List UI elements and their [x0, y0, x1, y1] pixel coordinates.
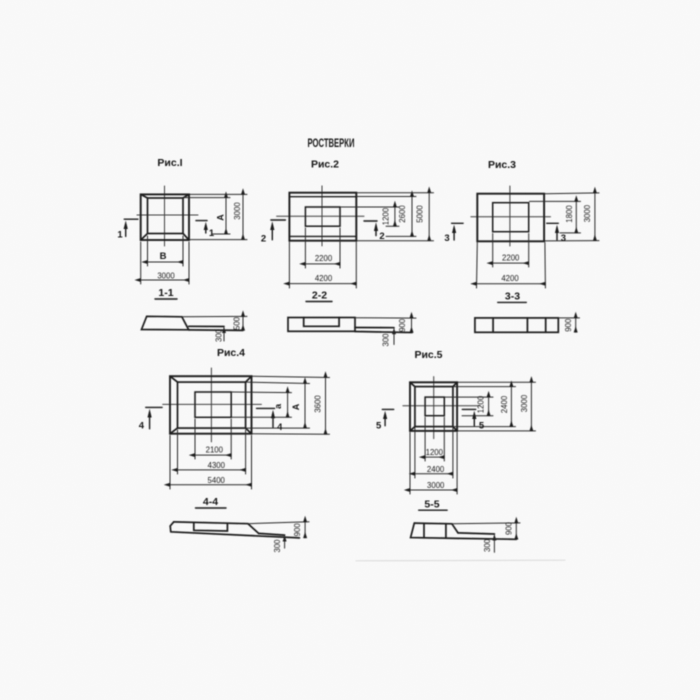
- svg-text:1-1: 1-1: [158, 287, 173, 299]
- svg-text:900: 900: [505, 521, 514, 535]
- svg-text:300: 300: [382, 333, 391, 347]
- svg-text:500: 500: [232, 316, 241, 330]
- svg-text:300: 300: [214, 328, 223, 342]
- svg-text:2: 2: [379, 231, 384, 242]
- svg-text:3-3: 3-3: [505, 291, 520, 303]
- svg-text:2-2: 2-2: [312, 290, 327, 302]
- svg-text:Рис.I: Рис.I: [157, 157, 182, 169]
- svg-text:1: 1: [117, 230, 123, 241]
- svg-text:3: 3: [561, 233, 566, 244]
- svg-text:3000: 3000: [427, 481, 445, 490]
- svg-text:5400: 5400: [208, 476, 226, 485]
- svg-text:1: 1: [209, 228, 215, 239]
- svg-text:1200: 1200: [426, 448, 444, 457]
- svg-text:3000: 3000: [233, 202, 242, 220]
- svg-text:РОСТВЕРКИ: РОСТВЕРКИ: [308, 136, 355, 150]
- svg-text:300: 300: [483, 538, 492, 552]
- svg-text:1800: 1800: [565, 205, 574, 223]
- svg-text:2200: 2200: [315, 254, 333, 263]
- svg-text:2400: 2400: [427, 465, 445, 474]
- svg-text:5: 5: [376, 421, 382, 432]
- svg-text:5: 5: [479, 421, 485, 432]
- svg-text:900: 900: [564, 318, 573, 332]
- svg-text:1200: 1200: [477, 395, 486, 413]
- svg-text:Рис.4: Рис.4: [217, 347, 245, 359]
- svg-text:900: 900: [398, 318, 407, 332]
- svg-text:2600: 2600: [398, 205, 407, 223]
- svg-text:4-4: 4-4: [203, 496, 218, 508]
- svg-text:5000: 5000: [416, 205, 425, 223]
- svg-text:В: В: [160, 251, 167, 262]
- svg-text:300: 300: [273, 539, 282, 553]
- svg-text:4: 4: [139, 421, 145, 432]
- svg-text:3600: 3600: [313, 395, 322, 413]
- svg-text:Рис.5: Рис.5: [414, 349, 442, 361]
- svg-text:2200: 2200: [502, 254, 520, 263]
- svg-text:Рис.2: Рис.2: [311, 159, 339, 171]
- svg-text:А: А: [216, 214, 226, 221]
- svg-text:4: 4: [277, 422, 283, 433]
- svg-text:1200: 1200: [382, 207, 391, 225]
- svg-text:3: 3: [444, 233, 449, 244]
- svg-text:4300: 4300: [208, 461, 226, 470]
- svg-text:4200: 4200: [315, 274, 333, 283]
- svg-text:900: 900: [293, 523, 302, 537]
- svg-text:3000: 3000: [157, 272, 175, 281]
- svg-text:5-5: 5-5: [424, 499, 439, 511]
- svg-text:3000: 3000: [583, 204, 592, 222]
- svg-text:Рис.3: Рис.3: [488, 159, 516, 171]
- svg-text:4200: 4200: [501, 274, 519, 283]
- svg-text:3000: 3000: [520, 394, 529, 412]
- svg-text:2: 2: [261, 234, 266, 245]
- svg-text:2400: 2400: [500, 395, 509, 413]
- svg-text:2100: 2100: [206, 446, 224, 455]
- svg-text:А: А: [291, 403, 301, 410]
